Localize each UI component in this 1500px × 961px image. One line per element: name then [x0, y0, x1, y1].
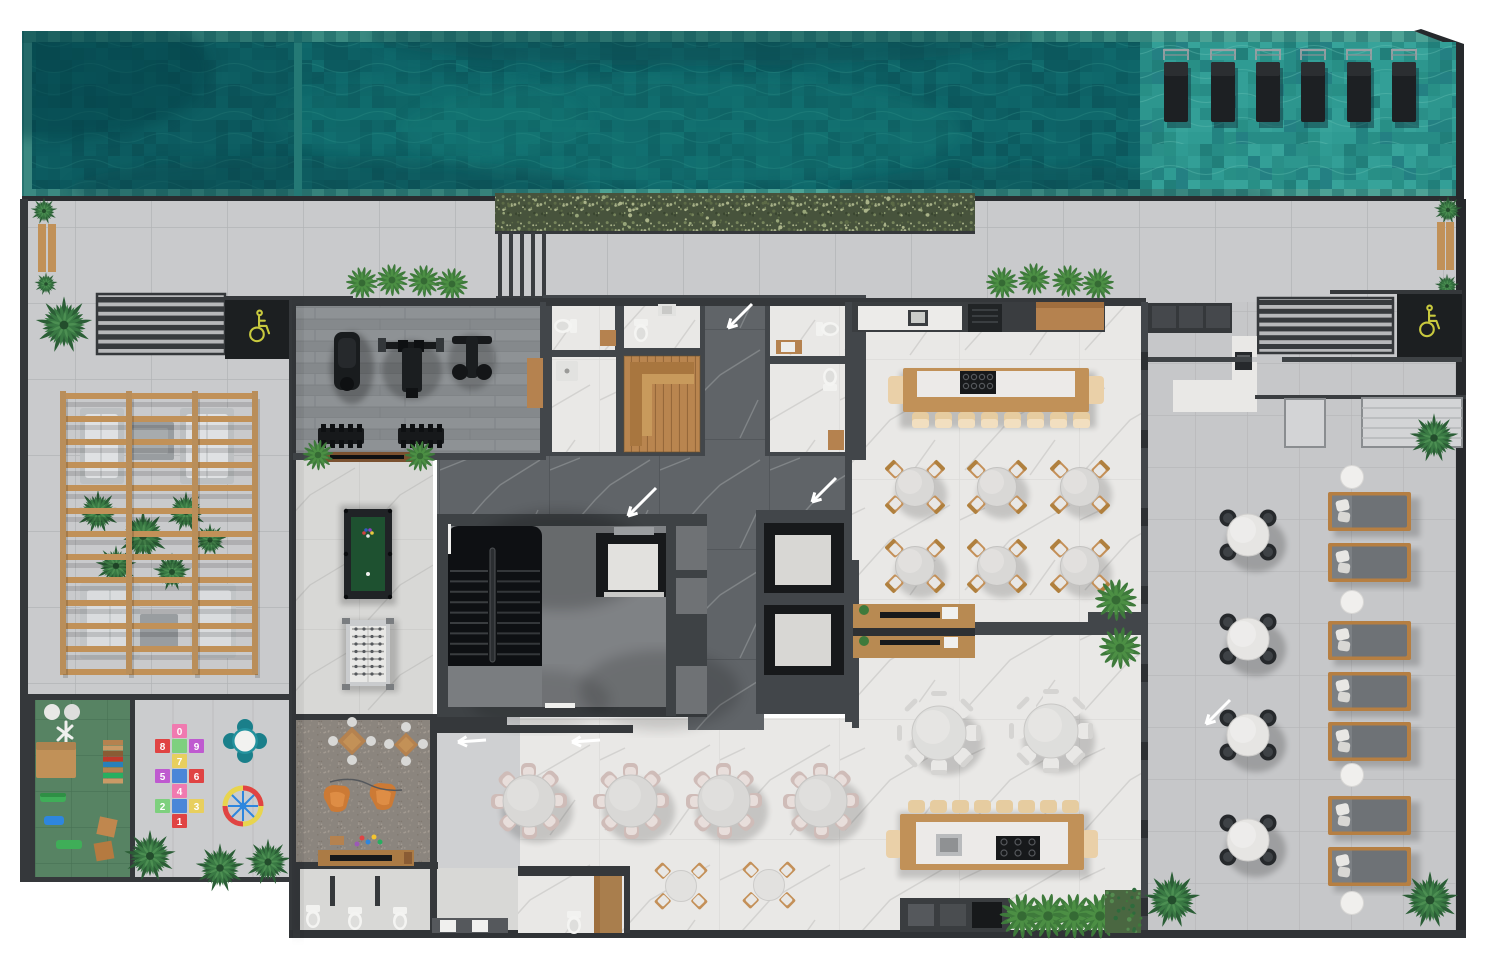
svg-text:6: 6: [194, 772, 200, 783]
svg-text:5: 5: [160, 772, 166, 783]
svg-text:9: 9: [194, 742, 200, 753]
svg-text:4: 4: [177, 787, 183, 798]
svg-text:2: 2: [160, 802, 166, 813]
svg-text:8: 8: [160, 742, 166, 753]
svg-text:1: 1: [177, 817, 183, 828]
svg-text:7: 7: [177, 757, 183, 768]
svg-text:0: 0: [177, 727, 183, 738]
svg-text:3: 3: [194, 802, 200, 813]
